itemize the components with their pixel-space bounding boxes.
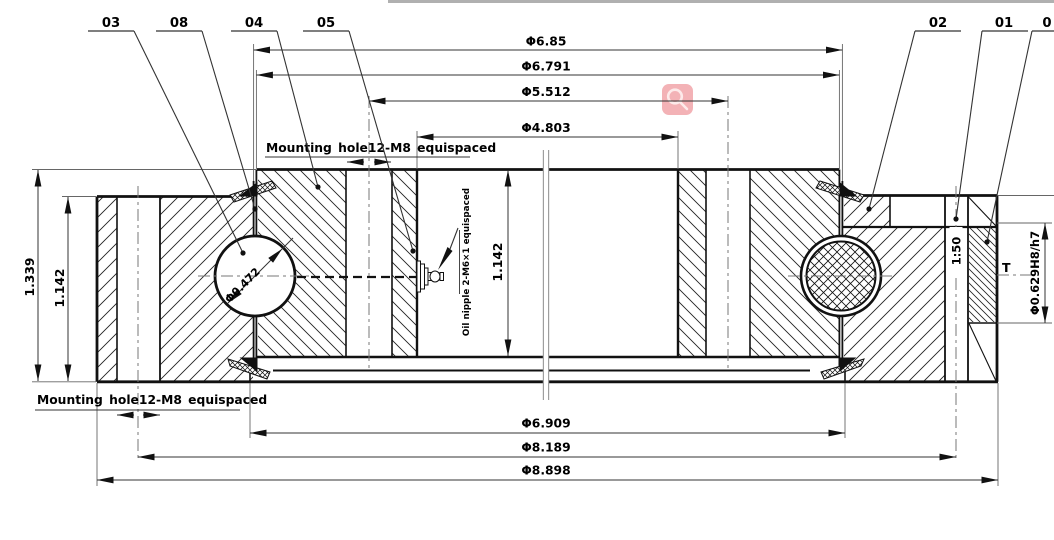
dim-top-3: Φ5.512 — [521, 85, 570, 99]
break-lines — [543, 150, 548, 400]
engineering-drawing: Oil nipple 2-M6×1 equispaced — [0, 0, 1054, 540]
taper-ratio-dim: 1:50 — [950, 237, 964, 266]
zoom-icon[interactable] — [662, 84, 693, 115]
oil-nipple-note: Oil nipple 2-M6×1 equispaced — [462, 188, 472, 336]
dim-height-total: 1.339 — [23, 258, 37, 297]
dim-height-inner: 1.142 — [491, 243, 505, 282]
mounting-note-bottom: Mounting hole12-M8 equispaced — [35, 393, 267, 415]
oil-nipple — [417, 261, 444, 292]
svg-text:0: 0 — [1042, 16, 1051, 31]
part-label-08: 08 — [156, 16, 258, 212]
dim-top-2: Φ6.791 — [521, 60, 570, 74]
svg-text:03: 03 — [102, 16, 120, 31]
top-strip — [388, 0, 1054, 3]
part-label-01: 01 — [953, 16, 1028, 222]
svg-text:08: 08 — [170, 16, 188, 31]
pin-bushing-section — [969, 228, 996, 322]
pin-bore-dim: Φ0.629H8/h7 — [1028, 231, 1042, 315]
dim-bottom-1: Φ6.909 — [521, 417, 570, 431]
dim-bottom-3: Φ8.898 — [521, 464, 570, 478]
dim-top-1: Φ6.85 — [526, 35, 567, 49]
dim-bottom-2: Φ8.189 — [521, 441, 570, 455]
taper-pin-mark: T — [1002, 260, 1011, 275]
part-label-04: 04 — [231, 16, 321, 190]
svg-text:04: 04 — [245, 16, 263, 31]
mounting-note-top: Mounting hole12-M8 equispaced — [265, 141, 496, 162]
part-label-0: 0 — [984, 16, 1054, 245]
dim-height-outer: 1.142 — [53, 269, 67, 308]
svg-text:01: 01 — [995, 16, 1013, 31]
oil-nipple-callout: Oil nipple 2-M6×1 equispaced — [438, 188, 472, 336]
part-label-02: 02 — [866, 16, 961, 212]
svg-text:02: 02 — [929, 16, 947, 31]
drawing-viewer: Oil nipple 2-M6×1 equispaced — [0, 0, 1054, 540]
dim-top-4: Φ4.803 — [521, 121, 570, 135]
mounting-note-bottom-text: Mounting hole12-M8 equispaced — [37, 393, 267, 407]
svg-text:05: 05 — [317, 16, 335, 31]
